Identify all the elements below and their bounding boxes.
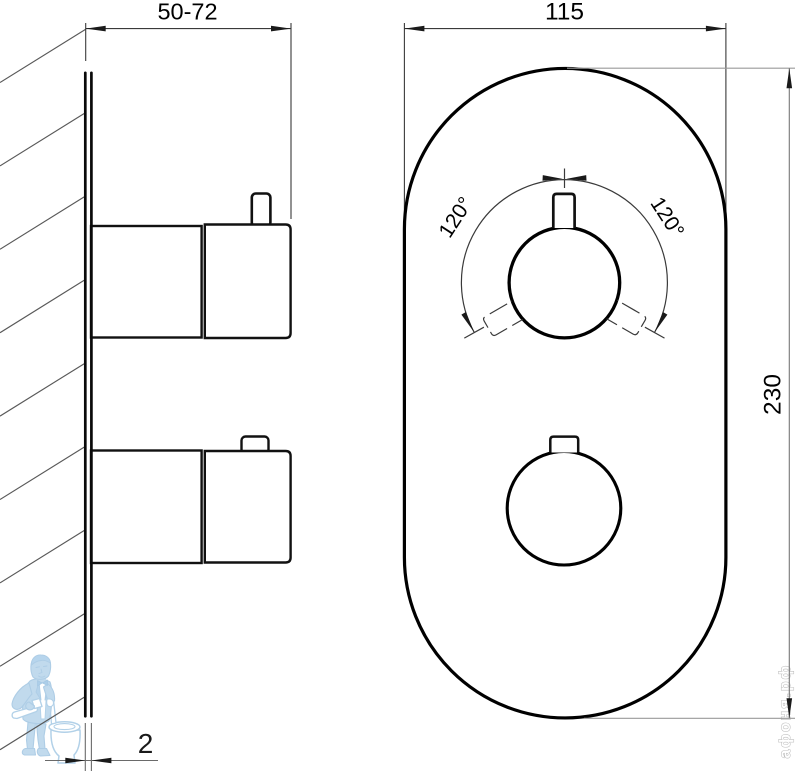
svg-text:115: 115 <box>545 0 584 26</box>
svg-text:2: 2 <box>138 728 154 759</box>
svg-text:50-72: 50-72 <box>157 0 217 25</box>
svg-text:230: 230 <box>760 374 787 415</box>
svg-text:афоня.рф: афоня.рф <box>777 664 794 759</box>
